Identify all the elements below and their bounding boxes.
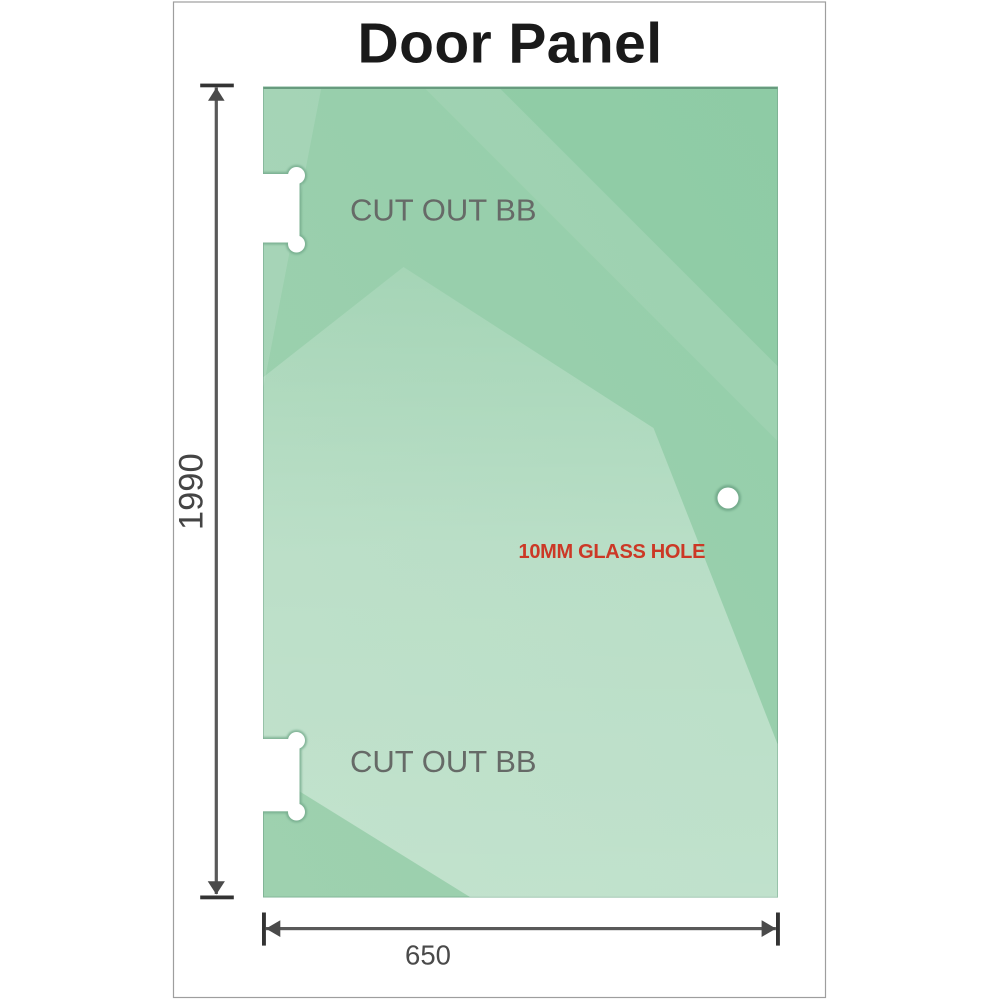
- svg-text:Door Panel: Door Panel: [358, 12, 663, 76]
- svg-text:1990: 1990: [173, 453, 211, 530]
- svg-text:10MM GLASS HOLE: 10MM GLASS HOLE: [519, 541, 706, 563]
- svg-text:CUT OUT BB: CUT OUT BB: [350, 744, 537, 779]
- svg-text:CUT OUT BB: CUT OUT BB: [350, 193, 537, 228]
- svg-text:650: 650: [405, 940, 451, 971]
